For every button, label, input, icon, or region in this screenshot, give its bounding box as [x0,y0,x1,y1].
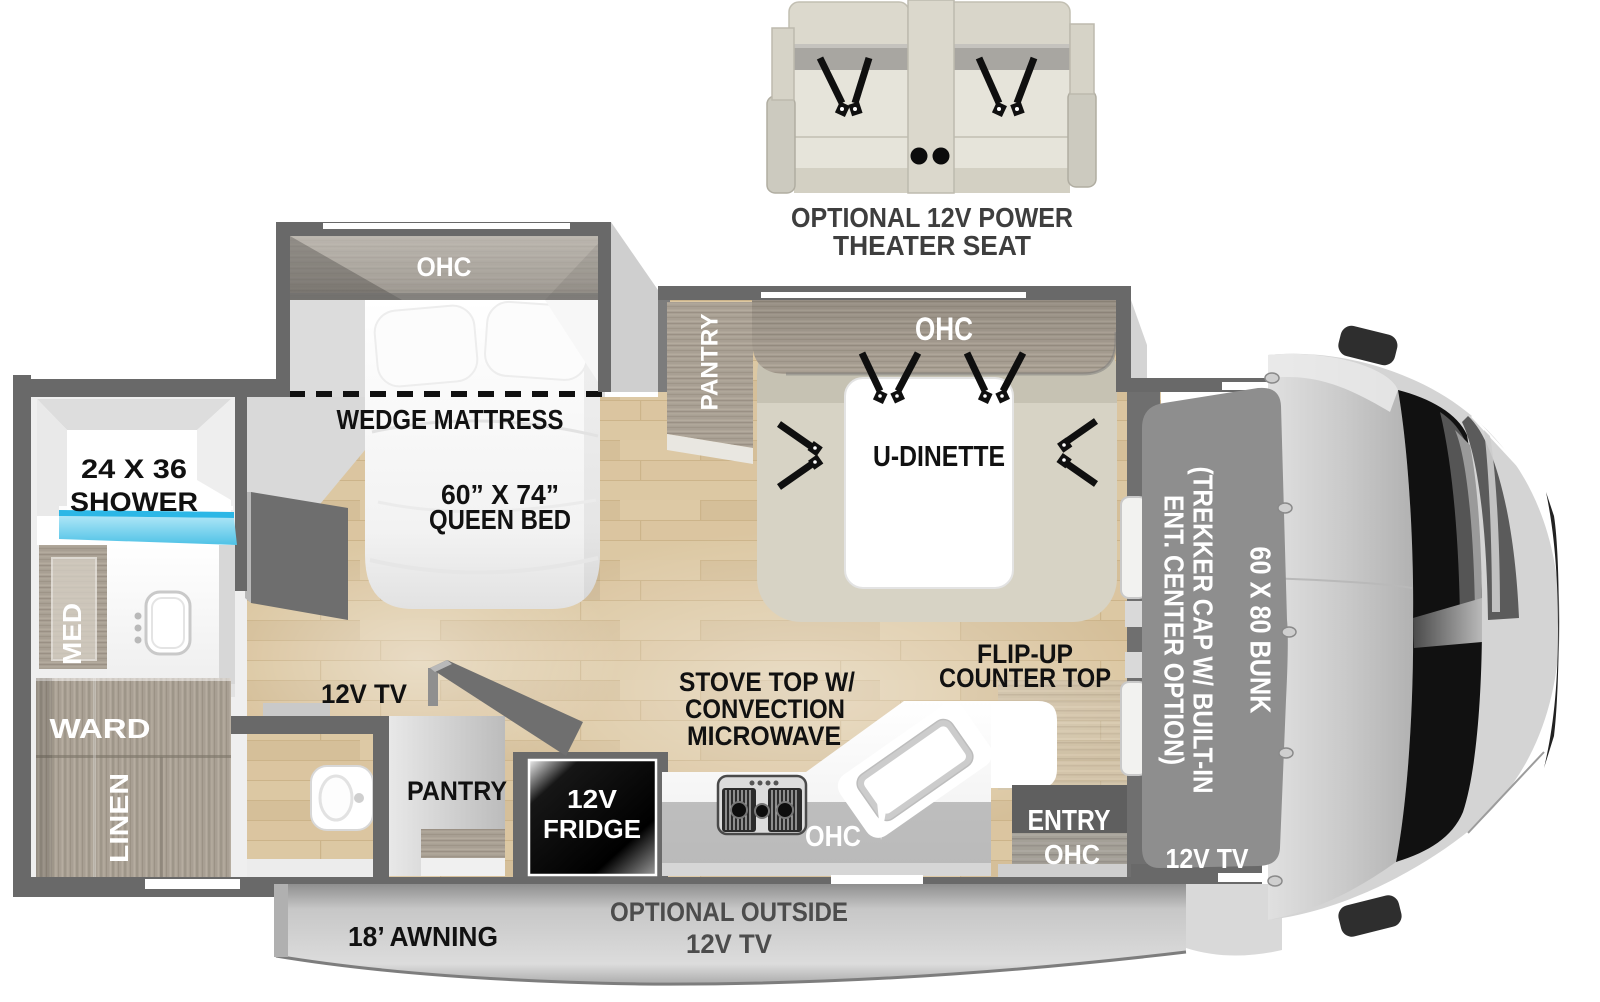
svg-text:OHC: OHC [417,252,472,282]
svg-text:THEATER SEAT: THEATER SEAT [833,230,1031,261]
svg-text:OHC: OHC [915,311,973,347]
svg-text:18’ AWNING: 18’ AWNING [348,921,498,952]
svg-text:PANTRY: PANTRY [696,314,723,411]
svg-text:LINEN: LINEN [104,773,134,863]
svg-text:OHC: OHC [1044,839,1100,870]
svg-text:60 X 80 BUNK: 60 X 80 BUNK [1243,547,1275,714]
svg-text:12V: 12V [567,784,618,814]
svg-text:MICROWAVE: MICROWAVE [687,721,841,751]
svg-text:WEDGE MATTRESS: WEDGE MATTRESS [337,404,564,435]
svg-text:(TREKKER CAP W/ BUILT-IN: (TREKKER CAP W/ BUILT-IN [1188,467,1219,794]
svg-text:24 X 36: 24 X 36 [81,454,187,484]
svg-text:MED: MED [57,603,87,665]
svg-text:OHC: OHC [805,821,861,853]
svg-text:FRIDGE: FRIDGE [543,814,641,844]
svg-text:COUNTER TOP: COUNTER TOP [939,663,1111,693]
svg-text:12V TV: 12V TV [1166,843,1249,874]
svg-text:U-DINETTE: U-DINETTE [873,441,1005,473]
svg-text:OPTIONAL OUTSIDE: OPTIONAL OUTSIDE [610,897,848,927]
svg-text:ENT. CENTER OPTION): ENT. CENTER OPTION) [1159,495,1190,765]
svg-text:12V TV: 12V TV [686,929,772,959]
svg-text:SHOWER: SHOWER [70,487,198,517]
svg-text:CONVECTION: CONVECTION [685,694,845,724]
svg-text:STOVE TOP W/: STOVE TOP W/ [679,667,855,697]
svg-text:QUEEN BED: QUEEN BED [429,504,571,535]
svg-text:12V TV: 12V TV [321,679,407,709]
svg-text:WARD: WARD [50,713,151,744]
svg-text:ENTRY: ENTRY [1028,805,1111,837]
svg-text:PANTRY: PANTRY [407,776,507,806]
svg-text:OPTIONAL 12V POWER: OPTIONAL 12V POWER [791,202,1073,233]
